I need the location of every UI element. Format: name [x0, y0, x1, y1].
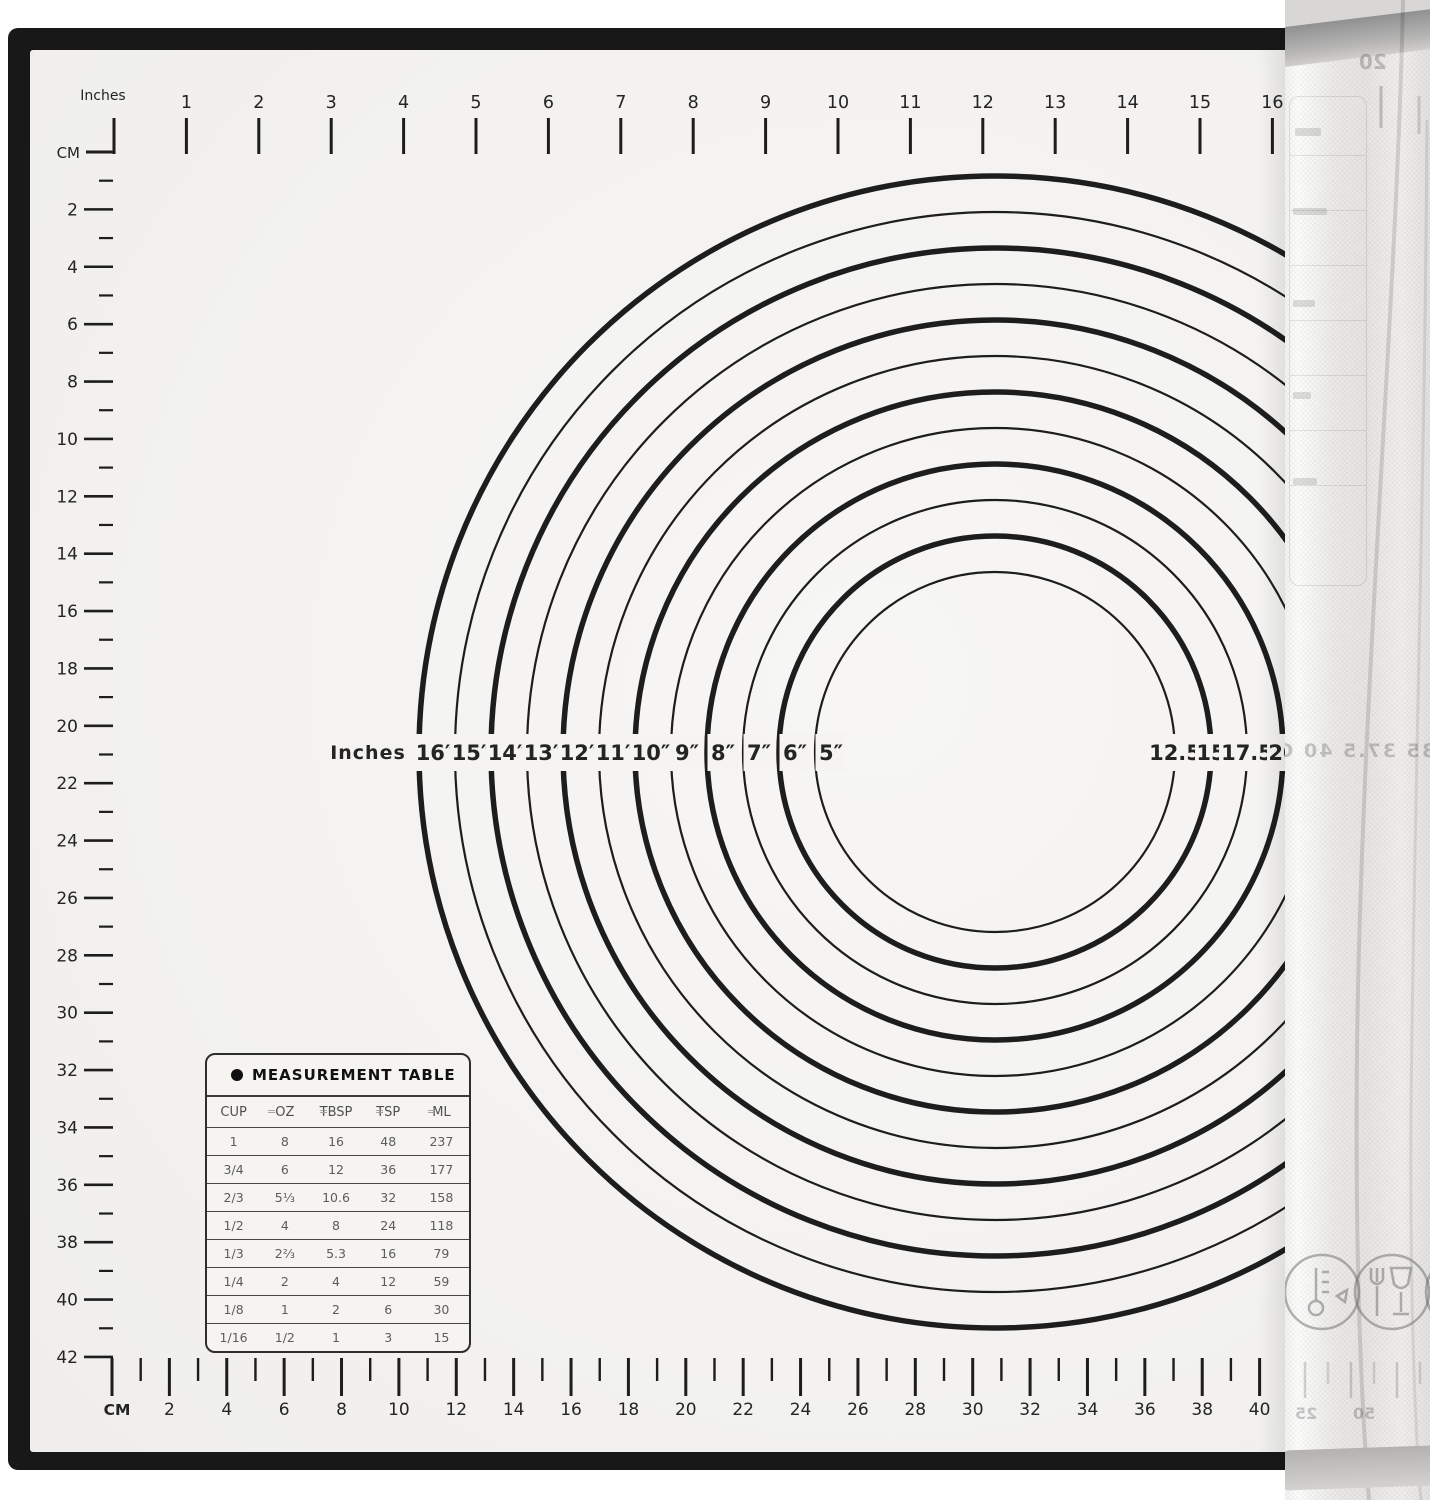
table-row: 1/32⅔5.31679: [207, 1239, 469, 1267]
table-cell: 158: [414, 1190, 469, 1205]
table-cell: 6: [363, 1302, 414, 1317]
table-column-header: TSP: [363, 1105, 414, 1120]
table-cell: 237: [414, 1134, 469, 1149]
table-cell: 1/16: [207, 1330, 260, 1345]
equals-sign: =: [375, 1105, 384, 1118]
table-cell: 16: [309, 1134, 362, 1149]
table-cell: 24: [363, 1218, 414, 1233]
table-cell: 16: [363, 1246, 414, 1261]
table-row: 1/4241259: [207, 1267, 469, 1295]
table-cell: 1: [260, 1302, 309, 1317]
measurement-table: MEASUREMENT TABLE CUPOZTBSPTSPML====1816…: [205, 1053, 471, 1353]
table-cell: 36: [363, 1162, 414, 1177]
table-cell: 5.3: [309, 1246, 362, 1261]
table-cell: 1/4: [207, 1274, 260, 1289]
table-row: 1/161/21315: [207, 1323, 469, 1351]
table-row: 181648237: [207, 1127, 469, 1155]
table-column-header: CUP: [207, 1105, 260, 1120]
table-row: 3/461236177: [207, 1155, 469, 1183]
table-cell: 2: [309, 1302, 362, 1317]
measurement-table-title: MEASUREMENT TABLE: [207, 1055, 469, 1095]
table-cell: 30: [414, 1302, 469, 1317]
table-cell: 1: [207, 1134, 260, 1149]
table-cell: 1/8: [207, 1302, 260, 1317]
measurement-table-header: CUPOZTBSPTSPML====: [207, 1095, 469, 1127]
table-cell: 12: [363, 1274, 414, 1289]
table-cell: 1/2: [207, 1218, 260, 1233]
table-cell: 79: [414, 1246, 469, 1261]
table-cell: 6: [260, 1162, 309, 1177]
table-cell: 1/2: [260, 1330, 309, 1345]
table-row: 2/35⅓10.632158: [207, 1183, 469, 1211]
table-cell: 8: [309, 1218, 362, 1233]
table-cell: 118: [414, 1218, 469, 1233]
ghost-circle-arc: [1411, 120, 1427, 1500]
table-cell: 2/3: [207, 1190, 260, 1205]
table-row: 1/812630: [207, 1295, 469, 1323]
table-cell: 177: [414, 1162, 469, 1177]
table-cell: 4: [260, 1218, 309, 1233]
equals-sign: =: [267, 1105, 276, 1118]
table-cell: 2⅔: [260, 1246, 309, 1261]
table-column-header: TBSP: [309, 1105, 362, 1120]
table-cell: 1: [309, 1330, 362, 1345]
pastry-mat-photo: Inches16″15″14″13″12″11″10″9″8″7″6″5″12.…: [0, 0, 1430, 1500]
roll-ghost-graphics: [1285, 0, 1430, 1500]
roll-bottom-rim: [1285, 1445, 1430, 1490]
table-cell: 3: [363, 1330, 414, 1345]
ghost-circle-arc: [1357, 0, 1403, 1500]
food-safe-glass-fork-icon: [1355, 1255, 1429, 1329]
table-cell: 8: [260, 1134, 309, 1149]
rolled-mat: 20 35 37.5 40 CM 25 50: [1285, 0, 1430, 1500]
table-row: 1/24824118: [207, 1211, 469, 1239]
table-cell: 5⅓: [260, 1190, 309, 1205]
table-cell: 15: [414, 1330, 469, 1345]
table-bullet-icon: [231, 1069, 243, 1081]
table-cell: 32: [363, 1190, 414, 1205]
table-cell: 2: [260, 1274, 309, 1289]
table-cell: 1/3: [207, 1246, 260, 1261]
table-cell: 48: [363, 1134, 414, 1149]
equals-sign: =: [319, 1105, 328, 1118]
table-cell: 4: [309, 1274, 362, 1289]
table-column-header: ML: [414, 1105, 469, 1120]
roll-shadow-on-mat: [1258, 28, 1285, 1470]
table-cell: 10.6: [309, 1190, 362, 1205]
measurement-table-title-text: MEASUREMENT TABLE: [252, 1066, 456, 1084]
table-cell: 12: [309, 1162, 362, 1177]
table-cell: 59: [414, 1274, 469, 1289]
equals-sign: =: [427, 1105, 436, 1118]
table-cell: 3/4: [207, 1162, 260, 1177]
